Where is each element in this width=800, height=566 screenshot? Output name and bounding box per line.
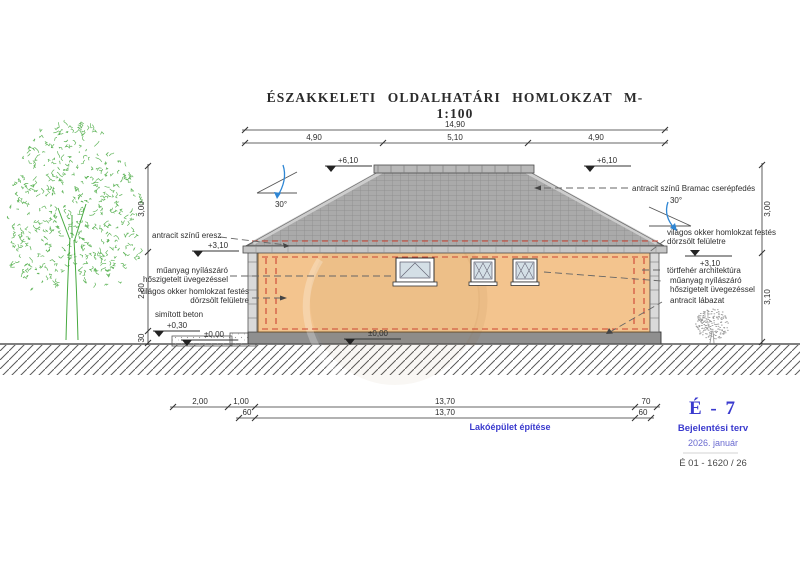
note-window-line1: műanyag nyílászáró	[670, 276, 742, 285]
window-sill	[393, 282, 437, 286]
dim-seg-3: 4,90	[588, 133, 604, 142]
document-number: É 01 - 1620 / 26	[679, 458, 747, 469]
eave-fascia	[243, 246, 667, 253]
svg-text:+0,30: +0,30	[167, 321, 188, 330]
roof-slope-symbol-right: 30°	[649, 196, 691, 231]
note-window-line2: hőszigetelt üvegezéssel	[143, 275, 228, 284]
annotations-left: antracit színű eresz műanyag nyílászáró …	[140, 231, 249, 319]
window-sill	[511, 282, 539, 286]
svg-text:+6,10: +6,10	[597, 156, 618, 165]
dim-total-width: 14,90	[445, 120, 466, 129]
svg-text:±0,00: ±0,00	[368, 329, 389, 338]
note-roof: antracit színű Bramac cserépfedés	[632, 184, 755, 193]
dim-b1-4: 70	[642, 397, 651, 406]
level-eave-left: +6,10	[325, 156, 372, 172]
window-sill	[469, 282, 497, 286]
level-eave-right: +6,10	[584, 156, 631, 172]
project-name: Lakóépület építése	[469, 422, 550, 432]
dim-b1-2: 1,00	[233, 397, 249, 406]
dim-left-plinth: 30	[137, 333, 146, 342]
drawing-sheet: ÉSZAKKELETI OLDALHATÁRI HOMLOKZAT M-1:10…	[0, 0, 800, 566]
svg-text:+3,10: +3,10	[208, 241, 229, 250]
plan-date: 2026. január	[688, 438, 738, 448]
shrub-stipple	[695, 309, 728, 343]
dimension-bottom: 2,00 1,00 13,70 70 60 13,70 60	[170, 397, 660, 421]
tree-foliage	[7, 120, 143, 290]
ridge	[374, 165, 534, 173]
dim-b1-3: 13,70	[435, 397, 456, 406]
note-facade-line1: világos okker homlokzat festés	[140, 287, 249, 296]
note-plinth: antracit lábazat	[670, 296, 725, 305]
dim-seg-1: 4,90	[306, 133, 322, 142]
elevation-drawing: 30° 30° 14,90 4,90 5,10 4,90	[0, 0, 800, 566]
dimension-left-vertical: 3,00 2,80 30	[137, 163, 151, 346]
note-facade-line2: dörzsölt felületre	[190, 296, 249, 305]
note-facade-line1: világos okker homlokzat festés	[667, 228, 776, 237]
level-walltop-left: +3,10	[192, 241, 239, 257]
dimension-right-vertical: 3,00 3,10	[759, 162, 772, 345]
dim-b2-3: 60	[639, 408, 648, 417]
note-eaves: antracit színű eresz	[152, 231, 221, 240]
tree	[7, 120, 143, 340]
note-concrete: simított beton	[155, 310, 203, 319]
shrub	[695, 309, 728, 343]
note-window-line2: hőszigetelt üvegezéssel	[670, 285, 755, 294]
dim-seg-2: 5,10	[447, 133, 463, 142]
note-trim: törtfehér architektúra	[667, 266, 741, 275]
slope-right-label: 30°	[670, 196, 682, 205]
dim-b1-1: 2,00	[192, 397, 208, 406]
window-small-1	[469, 259, 497, 286]
dim-left-upper: 3,00	[137, 201, 146, 217]
dimension-top: 14,90 4,90 5,10 4,90	[242, 120, 668, 146]
title-block: Lakóépület építése É - 7 Bejelentési ter…	[469, 397, 748, 469]
level-sidewalk: +0,30	[153, 321, 200, 337]
window-small-2	[511, 259, 539, 286]
roof-slope-symbol-left: 30°	[257, 165, 297, 209]
note-window-line1: műanyag nyílászáró	[156, 266, 228, 275]
dim-right-upper: 3,00	[763, 201, 772, 217]
downpipe-left	[248, 252, 257, 332]
downpipe-right	[650, 252, 659, 332]
plan-phase: Bejelentési terv	[678, 423, 749, 434]
roof	[243, 165, 667, 253]
dim-b2-1: 60	[243, 408, 252, 417]
svg-text:±0,00: ±0,00	[204, 330, 225, 339]
sheet-code: É - 7	[689, 397, 737, 419]
dim-b2-2: 13,70	[435, 408, 456, 417]
dim-right-lower: 3,10	[763, 289, 772, 305]
svg-text:+6,10: +6,10	[338, 156, 359, 165]
note-facade-line2: dörzsölt felületre	[667, 237, 726, 246]
window-large	[393, 258, 437, 286]
slope-left-label: 30°	[275, 200, 287, 209]
